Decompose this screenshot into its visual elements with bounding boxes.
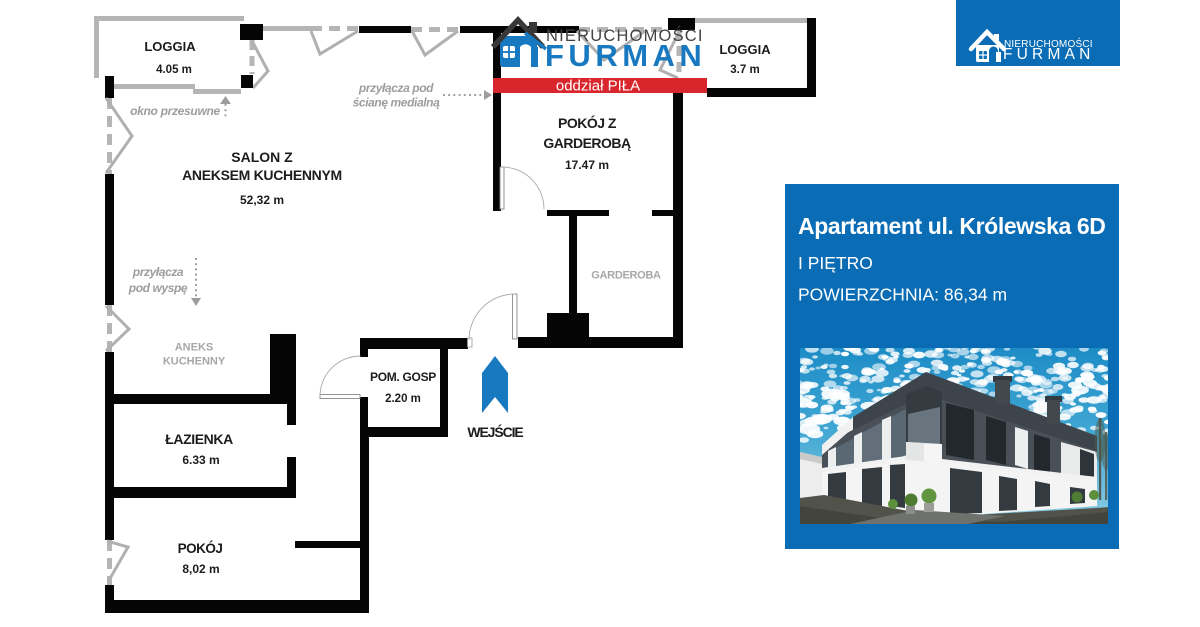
- svg-text:ŁAZIENKA: ŁAZIENKA: [165, 431, 233, 447]
- svg-text:KUCHENNY: KUCHENNY: [163, 356, 226, 368]
- svg-text:LOGGIA: LOGGIA: [144, 39, 196, 54]
- svg-text:okno przesuwne: okno przesuwne: [130, 104, 220, 118]
- svg-text:SALON Z: SALON Z: [231, 149, 293, 165]
- svg-text:GARDEROBĄ: GARDEROBĄ: [543, 135, 631, 151]
- svg-text:POWIERZCHNIA: 86,34 m: POWIERZCHNIA: 86,34 m: [798, 285, 1007, 305]
- svg-text:FURMAN: FURMAN: [1003, 46, 1095, 63]
- svg-text:ścianę medialną: ścianę medialną: [353, 96, 440, 110]
- svg-text:52,32 m: 52,32 m: [240, 193, 284, 207]
- svg-text:LOGGIA: LOGGIA: [719, 42, 771, 57]
- svg-text:8,02 m: 8,02 m: [182, 562, 219, 576]
- svg-text:POM. GOSP: POM. GOSP: [370, 370, 436, 384]
- svg-text:17.47 m: 17.47 m: [565, 158, 609, 172]
- svg-text:POKÓJ: POKÓJ: [178, 541, 223, 556]
- svg-text:I PIĘTRO: I PIĘTRO: [798, 253, 873, 273]
- svg-text:POKÓJ Z: POKÓJ Z: [558, 114, 617, 131]
- svg-text:przyłącza pod: przyłącza pod: [358, 81, 434, 95]
- svg-text:3.7 m: 3.7 m: [730, 64, 759, 76]
- svg-text:GARDEROBA: GARDEROBA: [591, 270, 661, 282]
- svg-text:FURMAN: FURMAN: [545, 38, 706, 73]
- svg-text:przyłącza: przyłącza: [132, 265, 184, 279]
- svg-text:WEJŚCIE: WEJŚCIE: [467, 423, 523, 440]
- svg-text:4.05 m: 4.05 m: [156, 64, 192, 76]
- svg-text:oddział PIŁA: oddział PIŁA: [556, 78, 640, 95]
- svg-text:6.33 m: 6.33 m: [182, 453, 219, 467]
- svg-text:ANEKSEM KUCHENNYM: ANEKSEM KUCHENNYM: [182, 167, 342, 183]
- svg-text:ANEKS: ANEKS: [175, 342, 214, 354]
- svg-text:Apartament ul. Królewska 6D: Apartament ul. Królewska 6D: [798, 213, 1105, 239]
- svg-text:2.20 m: 2.20 m: [385, 393, 421, 405]
- svg-text:pod wyspę: pod wyspę: [128, 281, 188, 295]
